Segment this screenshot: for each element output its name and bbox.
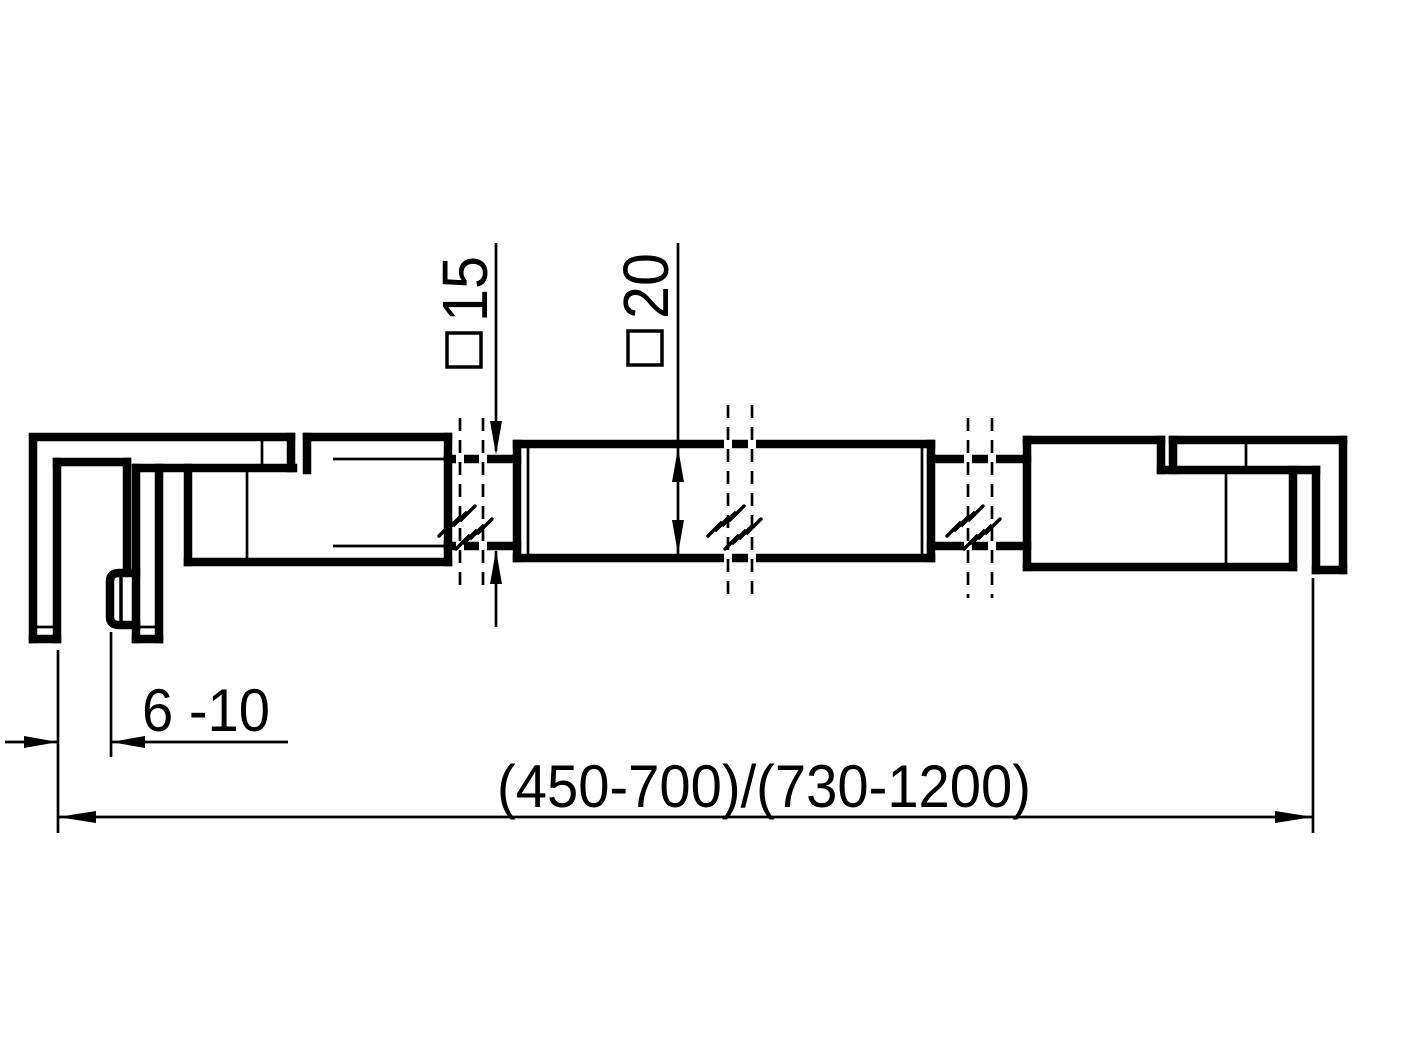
arrowhead-left-icon	[58, 811, 96, 823]
break-symbol-middle	[708, 405, 761, 598]
overall-length-value: (450-700)/(730-1200)	[497, 753, 1031, 820]
arrowhead-right-icon	[1275, 811, 1313, 823]
bar-section-value: 20	[610, 253, 682, 319]
square-section-icon	[447, 333, 481, 367]
arrowhead-up-icon	[490, 550, 502, 584]
arrowhead-down-icon	[490, 421, 502, 455]
technical-drawing-canvas: 15 20 6 -10 (450-700)/(730-1200)	[0, 0, 1417, 1063]
rod-section-value: 15	[429, 256, 501, 322]
arrowhead-right-icon	[24, 736, 58, 748]
stabilizer-bar-drawing: 15 20 6 -10 (450-700)/(730-1200)	[0, 0, 1417, 1063]
square-section-icon	[628, 331, 662, 365]
arrowhead-down-icon	[672, 520, 684, 554]
glass-thickness-value: 6 -10	[142, 677, 270, 744]
dimension-glass-6-10: 6 -10	[5, 632, 288, 833]
arrowhead-up-icon	[672, 448, 684, 482]
right-wall-clamp	[1027, 440, 1343, 570]
left-glass-clamp	[33, 437, 448, 639]
dimension-bar-20: 20	[610, 243, 684, 554]
break-symbol-right	[947, 418, 1000, 598]
arrowhead-left-icon	[111, 736, 145, 748]
